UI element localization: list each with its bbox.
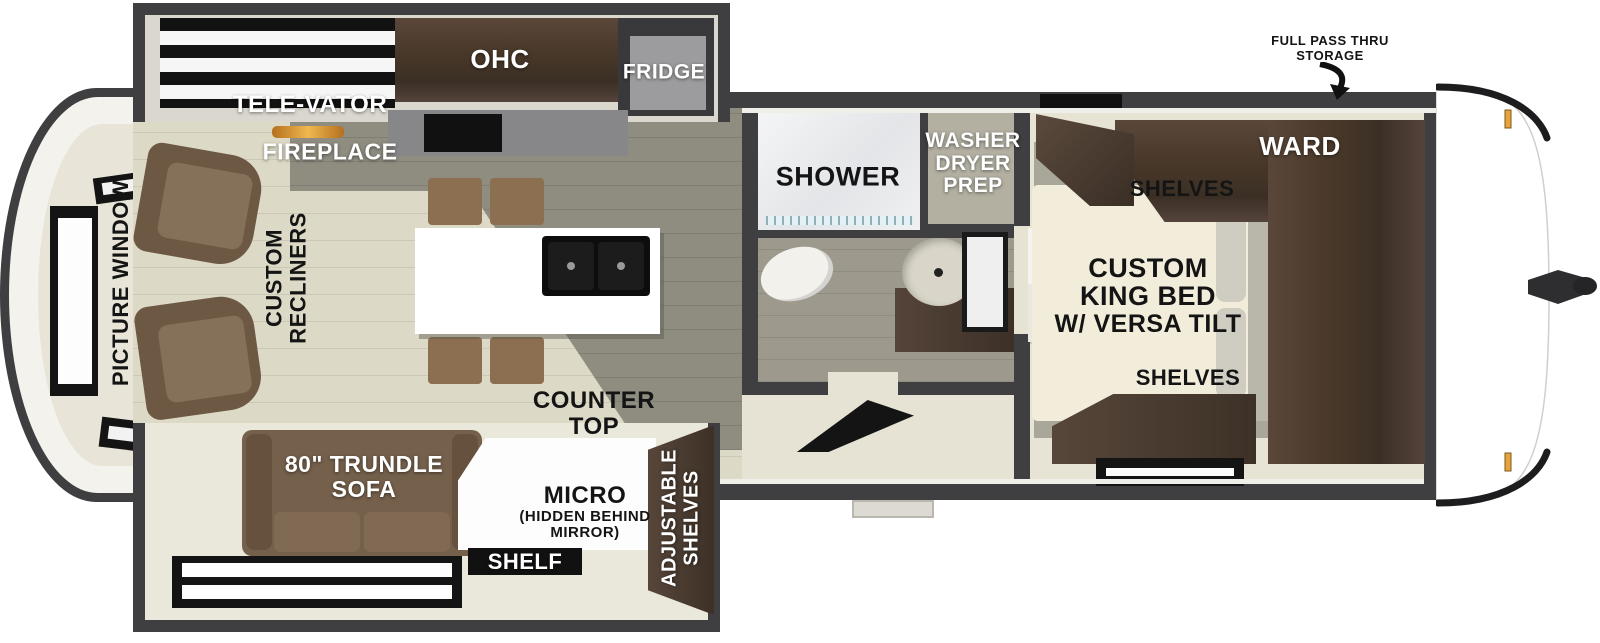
micro-label: MICRO (HIDDEN BEHIND MIRROR) [519,483,650,541]
washer-label: WASHER DRYER PREP [925,130,1020,198]
sofa-cushion [274,512,360,552]
recliner-cushion [156,161,254,251]
fridge-label: FRIDGE [623,62,705,85]
sofa-arm [246,434,272,550]
picture-window-pane [58,218,92,384]
floorplan-canvas: FULL PASS THRU STORAGE TELE-VATOR OHC FR… [0,0,1600,643]
king-bed-label: CUSTOM KING BED W/ VERSA TILT [1054,254,1241,338]
stool [490,178,544,225]
pass-thru-label: FULL PASS THRU STORAGE [1271,33,1389,63]
picture-window-label: PICTURE WINDOW [109,180,133,386]
sofa-cushion [364,512,450,552]
shower-label: SHOWER [776,162,901,191]
televator-label: TELE-VATOR [233,92,387,118]
recliners-label: CUSTOM RECLINERS [262,212,310,344]
marker-light [1505,453,1511,471]
counter-top-label: COUNTER TOP [533,388,655,440]
pass-thru-arrow-icon [1308,62,1354,100]
trundle-sofa-label: 80" TRUNDLE SOFA [285,452,443,502]
recliner-cushion [157,314,253,403]
bedroom-window-top [1040,94,1122,108]
stool [428,178,482,225]
shower-glass [766,216,914,225]
faucet-dot [567,262,575,270]
ward-label: WARD [1259,132,1340,160]
hitch-coupler [1573,277,1597,295]
mirror [962,232,1008,332]
stool [428,337,482,384]
sink-drain [934,268,943,277]
bathroom-door-opening [828,372,898,395]
entry-step [852,500,934,518]
stool [490,337,544,384]
bedroom-window-bottom-pane [1106,468,1234,476]
adjustable-shelves-label: ADJUSTABLE SHELVES [659,449,702,587]
bottom-wall [706,484,1440,500]
fireplace-label: FIREPLACE [263,140,398,165]
wall-face [742,108,1440,113]
shelves-bottom-label: SHELVES [1136,366,1241,390]
marker-light [1505,110,1511,128]
slideout-window-panes [182,563,452,601]
range-cooktop [424,114,502,152]
wall-face [720,479,1424,484]
hall-floor [742,380,1030,484]
front-cap [1436,82,1600,508]
ward-cabinet-front [1268,120,1425,464]
shelves-top-label: SHELVES [1130,177,1235,201]
shelf-label: SHELF [488,550,563,574]
ohc-label: OHC [470,45,529,73]
faucet-dot [617,262,625,270]
fireplace [272,126,344,138]
